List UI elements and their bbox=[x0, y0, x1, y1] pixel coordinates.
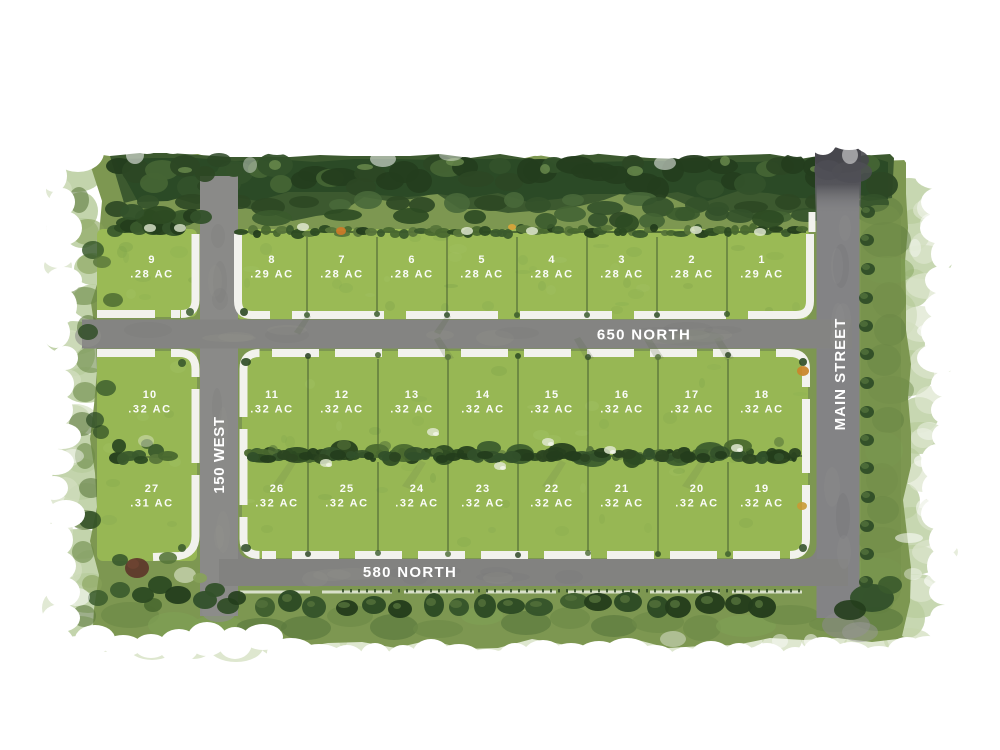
svg-text:10: 10 bbox=[143, 389, 157, 401]
svg-text:27: 27 bbox=[145, 483, 159, 495]
svg-text:.28 AC: .28 AC bbox=[130, 269, 173, 281]
svg-text:150 WEST: 150 WEST bbox=[211, 416, 228, 493]
svg-text:17: 17 bbox=[685, 389, 699, 401]
svg-text:MAIN STREET: MAIN STREET bbox=[832, 318, 849, 431]
svg-text:18: 18 bbox=[755, 389, 769, 401]
svg-text:21: 21 bbox=[615, 483, 629, 495]
svg-text:2: 2 bbox=[688, 254, 695, 266]
svg-text:.32 AC: .32 AC bbox=[461, 404, 504, 416]
svg-text:9: 9 bbox=[148, 254, 155, 266]
svg-text:.32 AC: .32 AC bbox=[600, 404, 643, 416]
svg-text:.32 AC: .32 AC bbox=[250, 404, 293, 416]
svg-text:13: 13 bbox=[405, 389, 419, 401]
svg-text:19: 19 bbox=[755, 483, 769, 495]
svg-text:.32 AC: .32 AC bbox=[600, 498, 643, 510]
svg-text:4: 4 bbox=[548, 254, 555, 266]
svg-text:23: 23 bbox=[476, 483, 490, 495]
svg-text:.32 AC: .32 AC bbox=[255, 498, 298, 510]
svg-text:.32 AC: .32 AC bbox=[390, 404, 433, 416]
svg-text:26: 26 bbox=[270, 483, 284, 495]
svg-text:5: 5 bbox=[478, 254, 485, 266]
svg-text:24: 24 bbox=[410, 483, 424, 495]
svg-text:.28 AC: .28 AC bbox=[390, 269, 433, 281]
svg-text:.29 AC: .29 AC bbox=[740, 269, 783, 281]
svg-text:.31 AC: .31 AC bbox=[130, 498, 173, 510]
svg-text:6: 6 bbox=[408, 254, 415, 266]
svg-text:.28 AC: .28 AC bbox=[460, 269, 503, 281]
svg-text:16: 16 bbox=[615, 389, 629, 401]
svg-text:.32 AC: .32 AC bbox=[320, 404, 363, 416]
svg-text:7: 7 bbox=[338, 254, 345, 266]
svg-text:.28 AC: .28 AC bbox=[530, 269, 573, 281]
svg-text:650 NORTH: 650 NORTH bbox=[597, 327, 691, 344]
svg-text:.32 AC: .32 AC bbox=[670, 404, 713, 416]
svg-text:.32 AC: .32 AC bbox=[740, 404, 783, 416]
svg-text:.32 AC: .32 AC bbox=[530, 498, 573, 510]
svg-text:15: 15 bbox=[545, 389, 559, 401]
svg-text:580 NORTH: 580 NORTH bbox=[363, 564, 457, 581]
svg-text:.32 AC: .32 AC bbox=[740, 498, 783, 510]
svg-text:.28 AC: .28 AC bbox=[670, 269, 713, 281]
svg-text:14: 14 bbox=[476, 389, 490, 401]
svg-text:20: 20 bbox=[690, 483, 704, 495]
svg-text:.32 AC: .32 AC bbox=[128, 404, 171, 416]
svg-text:1: 1 bbox=[758, 254, 765, 266]
svg-text:8: 8 bbox=[268, 254, 275, 266]
svg-text:3: 3 bbox=[618, 254, 625, 266]
svg-text:.29 AC: .29 AC bbox=[250, 269, 293, 281]
svg-text:25: 25 bbox=[340, 483, 354, 495]
svg-text:11: 11 bbox=[265, 389, 279, 401]
svg-text:.28 AC: .28 AC bbox=[320, 269, 363, 281]
svg-text:22: 22 bbox=[545, 483, 559, 495]
svg-text:.32 AC: .32 AC bbox=[675, 498, 718, 510]
svg-text:.28 AC: .28 AC bbox=[600, 269, 643, 281]
svg-text:.32 AC: .32 AC bbox=[325, 498, 368, 510]
svg-text:12: 12 bbox=[335, 389, 349, 401]
svg-text:.32 AC: .32 AC bbox=[395, 498, 438, 510]
svg-text:.32 AC: .32 AC bbox=[461, 498, 504, 510]
svg-text:.32 AC: .32 AC bbox=[530, 404, 573, 416]
